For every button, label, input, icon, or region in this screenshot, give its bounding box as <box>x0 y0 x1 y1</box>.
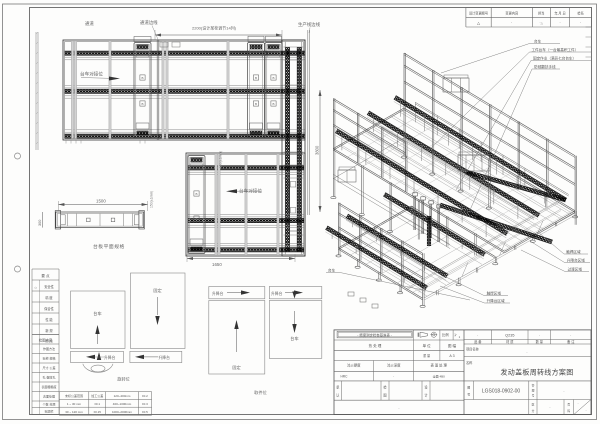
svg-text:变更内容: 变更内容 <box>505 11 519 16</box>
svg-text:触焊区域: 触焊区域 <box>487 291 502 296</box>
svg-text:生产线边线: 生产线边线 <box>298 21 321 28</box>
svg-text:台板平面规格: 台板平面规格 <box>93 243 125 250</box>
svg-text:±0.5: ±0.5 <box>142 410 148 414</box>
svg-text:过渡区域: 过渡区域 <box>568 267 583 272</box>
svg-text:码: 码 <box>567 409 570 413</box>
svg-text:热 处 理: 热 处 理 <box>369 343 382 348</box>
svg-text:品 番: 品 番 <box>474 339 482 344</box>
svg-text:发动盖板周转线方案图: 发动盖板周转线方案图 <box>501 368 574 377</box>
svg-text:图 幅: 图 幅 <box>448 343 457 348</box>
svg-text:标称·规格: 标称·规格 <box>43 356 56 361</box>
svg-text:·△: ·△ <box>540 21 544 25</box>
svg-text:孔·螺纹孔: 孔·螺纹孔 <box>43 375 56 380</box>
svg-text:单 位: 单 位 <box>423 343 432 348</box>
svg-text:表面粗糙度: 表面粗糙度 <box>41 384 56 389</box>
svg-text:数 量: 数 量 <box>536 339 544 344</box>
svg-text:台车: 台车 <box>328 268 336 273</box>
svg-text:固定作业（满员七台台车）: 固定作业（满员七台台车） <box>533 56 576 61</box>
svg-text:B: B <box>255 76 257 80</box>
svg-text:通道: 通道 <box>85 20 94 27</box>
svg-text:·: · <box>549 406 550 410</box>
svg-text:·: · <box>570 334 571 338</box>
svg-text:150(±1mm): 150(±1mm) <box>150 191 154 208</box>
svg-text:120~400mm: 120~400mm <box>114 394 131 398</box>
svg-text:B: B <box>195 192 197 196</box>
svg-text:淬火硬度: 淬火硬度 <box>347 363 361 368</box>
svg-text:升降台: 升降台 <box>271 291 283 296</box>
svg-text:1 ~ 30 mm: 1 ~ 30 mm <box>67 402 82 406</box>
svg-text:1000~2000mm: 1000~2000mm <box>112 410 133 414</box>
svg-text:- 精度测定检查基准表 -: - 精度测定检查基准表 - <box>357 332 392 337</box>
svg-text:B: B <box>195 217 197 221</box>
svg-text:升降台: 升降台 <box>104 355 116 360</box>
svg-text:台车: 台车 <box>290 335 298 342</box>
svg-text:升降台区域: 升降台区域 <box>487 298 505 303</box>
svg-text:备 注: 备 注 <box>567 339 575 344</box>
svg-text:升降台区域: 升降台区域 <box>567 258 585 263</box>
svg-text:理: 理 <box>532 389 535 393</box>
svg-text:LGS018-0902-00: LGS018-0902-00 <box>482 389 521 395</box>
svg-text:A 3: A 3 <box>449 354 454 358</box>
svg-text:安全性: 安全性 <box>44 284 54 289</box>
svg-text:表 面 处 理: 表 面 处 理 <box>431 363 448 368</box>
svg-text:400~1000mm: 400~1000mm <box>113 402 132 406</box>
svg-text:全面 4B0: 全面 4B0 <box>433 373 446 378</box>
svg-text:检图内容: 检图内容 <box>39 338 53 343</box>
svg-text:·: · <box>559 20 560 25</box>
svg-text:1500: 1500 <box>96 199 106 204</box>
svg-text:台车: 台车 <box>93 310 101 317</box>
svg-text:精 度: 精 度 <box>45 295 53 300</box>
svg-text:300: 300 <box>38 220 42 226</box>
svg-text:150(±1mm): 150(±1mm) <box>219 151 223 168</box>
svg-text:加工公差: 加工公差 <box>91 393 103 398</box>
svg-text:号: 号 <box>532 394 535 398</box>
svg-text:新 规: 新 规 <box>45 328 53 333</box>
svg-text:比例: 比例 <box>442 332 449 337</box>
svg-text:性 能: 性 能 <box>45 317 53 322</box>
svg-text:分: 分 <box>532 409 535 413</box>
svg-text:HRC: HRC <box>341 374 349 378</box>
svg-text:·: · <box>585 409 586 413</box>
svg-text:未标公差范围: 未标公差范围 <box>65 393 83 398</box>
svg-text:升降台: 升降台 <box>212 291 224 296</box>
svg-text:个数·材质: 个数·材质 <box>43 402 56 407</box>
svg-text:±0.3: ±0.3 <box>142 402 148 406</box>
svg-text:升降台: 升降台 <box>159 355 171 360</box>
svg-text:页: 页 <box>567 403 570 407</box>
svg-text:Q235: Q235 <box>505 334 514 338</box>
svg-text:·: · <box>526 351 527 355</box>
svg-text:触焊区域: 触焊区域 <box>566 249 581 254</box>
svg-text:工件台车（一台最高积工件）: 工件台车（一台最高积工件） <box>532 47 579 52</box>
svg-text:标题栏: 标题栏 <box>44 408 53 413</box>
svg-text:B: B <box>141 76 143 80</box>
svg-text:图: 图 <box>467 386 470 390</box>
svg-text:台车: 台车 <box>534 39 542 44</box>
svg-text:·: · <box>398 407 399 411</box>
svg-text:名称: 名称 <box>466 360 473 365</box>
svg-text:淬火深度: 淬火深度 <box>387 363 401 368</box>
svg-text:取件位: 取件位 <box>254 389 267 396</box>
svg-text:B: B <box>272 102 274 106</box>
svg-text:·: · <box>477 334 478 338</box>
svg-text:重 量: 重 量 <box>423 353 431 358</box>
svg-text:2200(设计某栓调节14列): 2200(设计某栓调节14列) <box>192 25 237 31</box>
svg-text:B: B <box>141 102 143 106</box>
svg-text:项目名称: 项目名称 <box>466 347 480 352</box>
svg-text:保合性: 保合性 <box>44 306 54 311</box>
svg-text:·: · <box>393 374 394 378</box>
svg-text:1650: 1650 <box>212 262 222 267</box>
svg-text:±0.2: ±0.2 <box>142 394 148 398</box>
svg-text:·: · <box>577 402 578 406</box>
svg-text:·: · <box>539 334 540 338</box>
svg-text:±0.1: ±0.1 <box>94 402 100 406</box>
svg-text:·: · <box>580 20 581 25</box>
svg-text:台车对接位: 台车对接位 <box>80 71 103 78</box>
svg-text:材 质: 材 质 <box>506 339 514 344</box>
svg-text:固定: 固定 <box>232 364 240 371</box>
svg-text:年.月.日: 年.月.日 <box>554 11 565 16</box>
svg-text:担当: 担当 <box>538 11 544 16</box>
svg-text:旋转位: 旋转位 <box>117 376 130 383</box>
svg-text:尺寸·公差: 尺寸·公差 <box>43 365 56 370</box>
svg-text:·: · <box>511 20 512 25</box>
svg-text:要 点: 要 点 <box>41 273 50 278</box>
svg-text:检系: 检系 <box>577 11 583 16</box>
svg-text:号: 号 <box>467 392 470 397</box>
svg-text:B: B <box>272 76 274 80</box>
svg-text:图: 图 <box>383 393 386 397</box>
svg-text:±0.15: ±0.15 <box>93 410 101 414</box>
svg-text:管: 管 <box>532 384 535 388</box>
svg-text:固定: 固定 <box>153 287 161 294</box>
svg-text:区: 区 <box>532 403 535 407</box>
svg-text:防倾翻扶手线: 防倾翻扶手线 <box>534 64 556 69</box>
svg-text:作图方法: 作图方法 <box>43 346 55 351</box>
svg-text:3800: 3800 <box>315 145 320 155</box>
svg-text:设计变更顺号: 设计变更顺号 <box>469 11 488 16</box>
svg-text:表面处理: 表面处理 <box>43 394 55 399</box>
svg-text:·: · <box>563 390 564 394</box>
svg-text:30 ~ 120 mm: 30 ~ 120 mm <box>65 410 83 414</box>
svg-text:通道边线: 通道边线 <box>140 19 158 26</box>
svg-text:B: B <box>255 102 257 106</box>
